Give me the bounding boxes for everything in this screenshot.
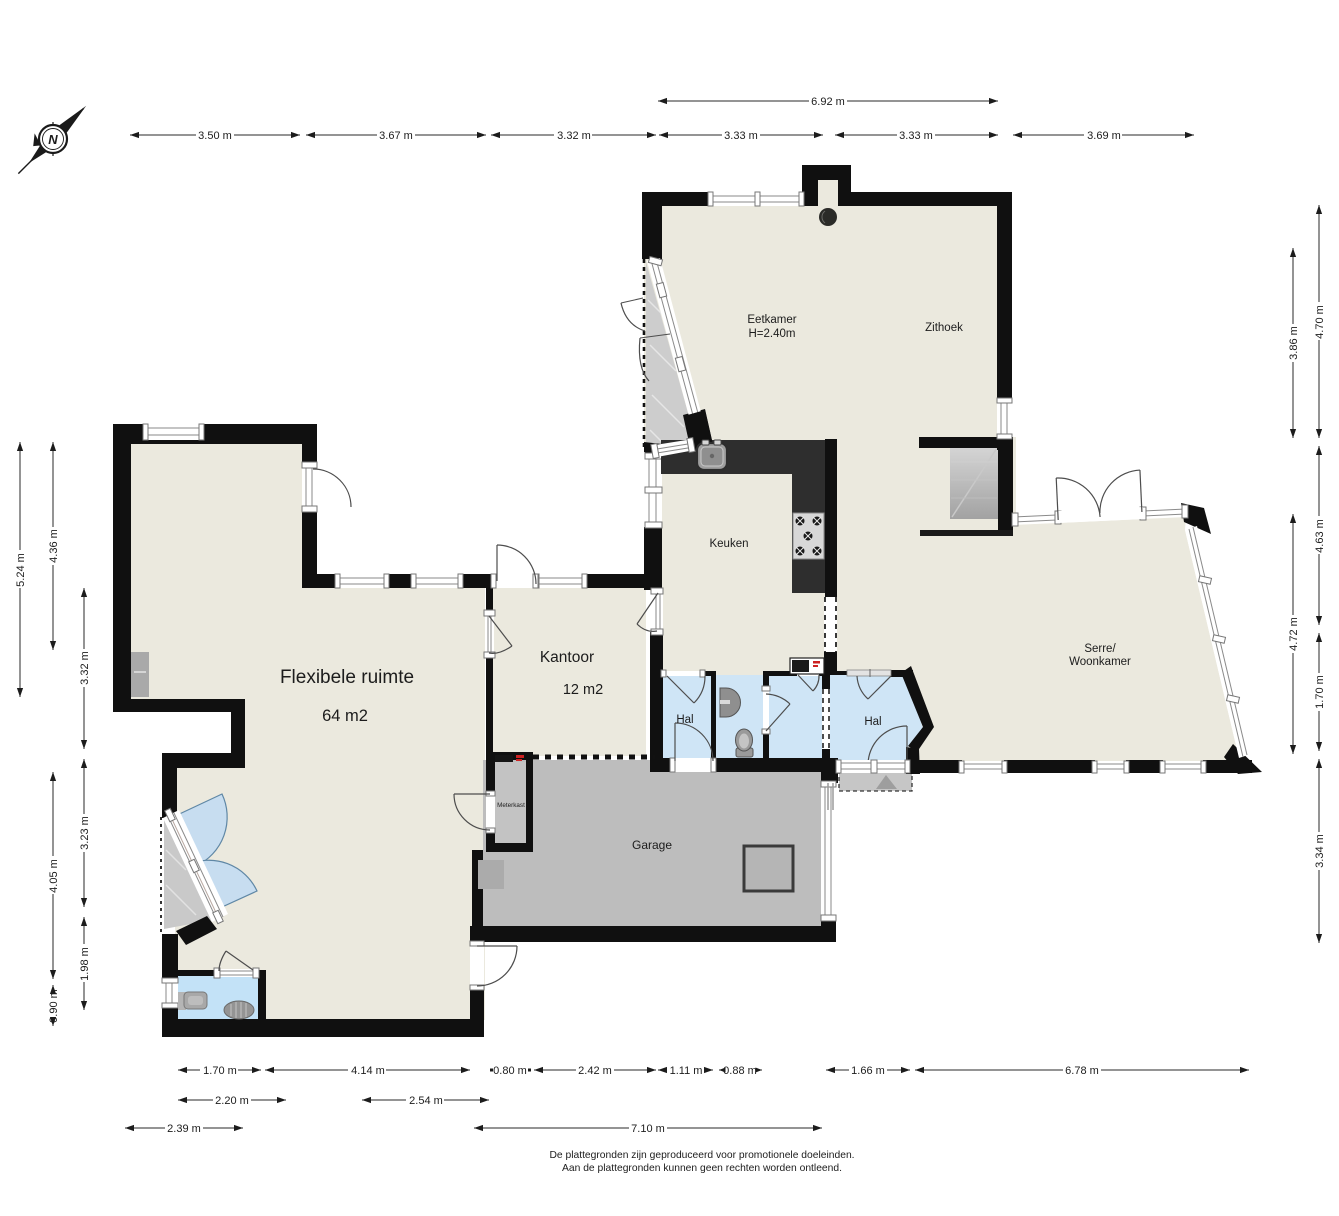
svg-text:1.70 m: 1.70 m	[1314, 675, 1326, 709]
svg-text:Hal: Hal	[676, 714, 693, 726]
svg-text:Keuken: Keuken	[709, 538, 748, 550]
svg-text:1.11 m: 1.11 m	[670, 1065, 703, 1077]
svg-text:0.88 m: 0.88 m	[723, 1065, 757, 1077]
svg-text:De plattegronden zijn geproduc: De plattegronden zijn geproduceerd voor …	[549, 1150, 854, 1161]
svg-text:Flexibele ruimte: Flexibele ruimte	[280, 667, 414, 688]
svg-text:4.63 m: 4.63 m	[1314, 519, 1326, 553]
svg-text:0.80 m: 0.80 m	[493, 1065, 527, 1077]
svg-text:H=2.40m: H=2.40m	[749, 328, 796, 340]
svg-text:3.33 m: 3.33 m	[899, 130, 933, 142]
svg-text:1.66 m: 1.66 m	[851, 1065, 885, 1077]
svg-text:3.34 m: 3.34 m	[1314, 834, 1326, 868]
svg-text:2.20 m: 2.20 m	[215, 1095, 249, 1107]
svg-text:3.86 m: 3.86 m	[1288, 326, 1300, 360]
svg-text:4.72 m: 4.72 m	[1288, 617, 1300, 651]
svg-text:3.50 m: 3.50 m	[198, 130, 232, 142]
svg-text:Woonkamer: Woonkamer	[1069, 656, 1131, 668]
svg-text:3.23 m: 3.23 m	[79, 816, 91, 850]
svg-text:N: N	[48, 132, 58, 147]
svg-text:64 m2: 64 m2	[322, 707, 368, 725]
svg-text:Eetkamer: Eetkamer	[747, 314, 796, 326]
svg-text:6.92 m: 6.92 m	[811, 96, 845, 108]
svg-text:12 m2: 12 m2	[563, 682, 603, 698]
svg-text:2.39 m: 2.39 m	[167, 1123, 201, 1135]
svg-text:4.36 m: 4.36 m	[48, 529, 60, 563]
svg-text:4.05 m: 4.05 m	[48, 859, 60, 893]
svg-text:7.10 m: 7.10 m	[631, 1123, 665, 1135]
svg-text:3.32 m: 3.32 m	[79, 651, 91, 685]
svg-text:4.14 m: 4.14 m	[351, 1065, 385, 1077]
svg-text:2.42 m: 2.42 m	[578, 1065, 612, 1077]
svg-text:3.33 m: 3.33 m	[724, 130, 758, 142]
svg-text:3.32 m: 3.32 m	[557, 130, 591, 142]
svg-text:Zithoek: Zithoek	[925, 322, 963, 334]
svg-text:1.98 m: 1.98 m	[79, 947, 91, 981]
svg-text:Garage: Garage	[632, 838, 672, 852]
svg-text:Serre/: Serre/	[1084, 643, 1116, 655]
svg-text:5.24 m: 5.24 m	[15, 553, 27, 587]
svg-text:1.70 m: 1.70 m	[203, 1065, 237, 1077]
svg-text:Meterkast: Meterkast	[497, 802, 525, 809]
svg-text:6.78 m: 6.78 m	[1065, 1065, 1099, 1077]
svg-text:3.69 m: 3.69 m	[1087, 130, 1121, 142]
svg-text:Kantoor: Kantoor	[540, 649, 594, 666]
svg-text:Aan de plattegronden kunnen ge: Aan de plattegronden kunnen geen rechten…	[562, 1163, 842, 1174]
svg-text:4.70 m: 4.70 m	[1314, 305, 1326, 339]
svg-text:Hal: Hal	[864, 716, 881, 728]
svg-text:2.54 m: 2.54 m	[409, 1095, 443, 1107]
svg-text:3.67 m: 3.67 m	[379, 130, 413, 142]
